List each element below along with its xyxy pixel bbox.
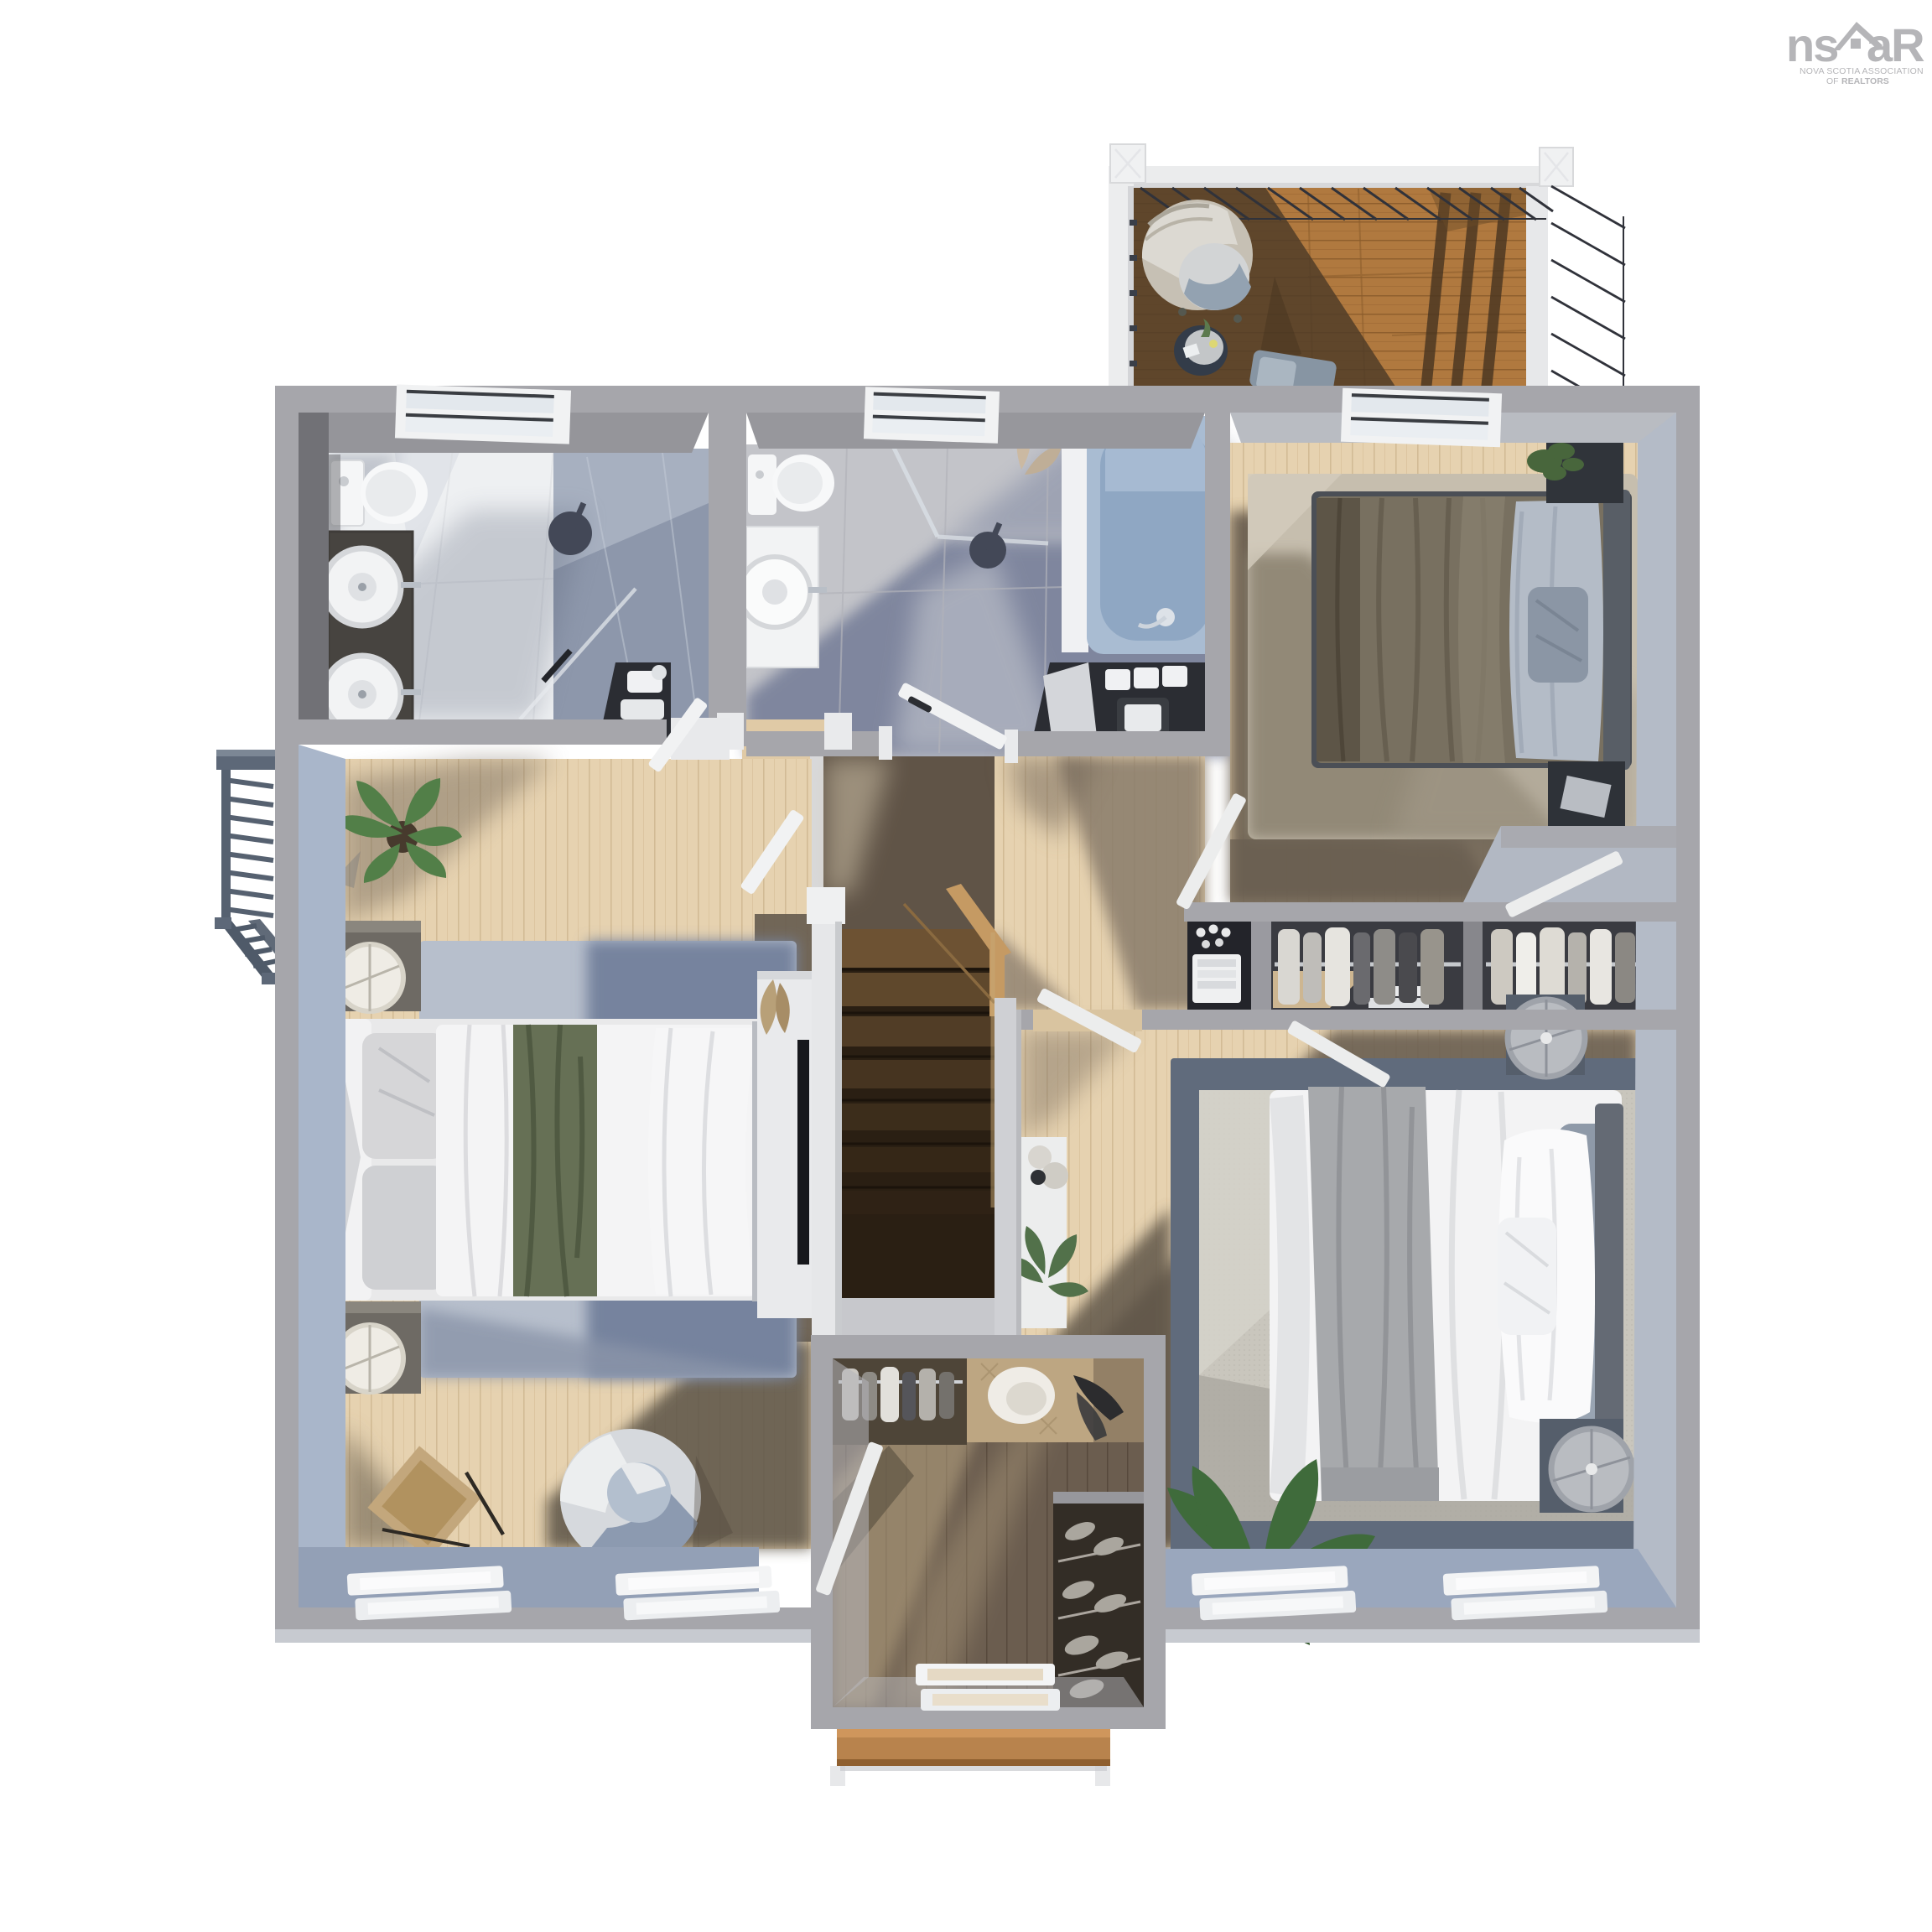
svg-text:OF: OF	[1826, 76, 1839, 86]
svg-text:ns: ns	[1786, 18, 1837, 71]
svg-text:NOVA SCOTIA ASSOCIATION: NOVA SCOTIA ASSOCIATION	[1800, 66, 1924, 76]
svg-text:REALTORS: REALTORS	[1841, 76, 1889, 86]
